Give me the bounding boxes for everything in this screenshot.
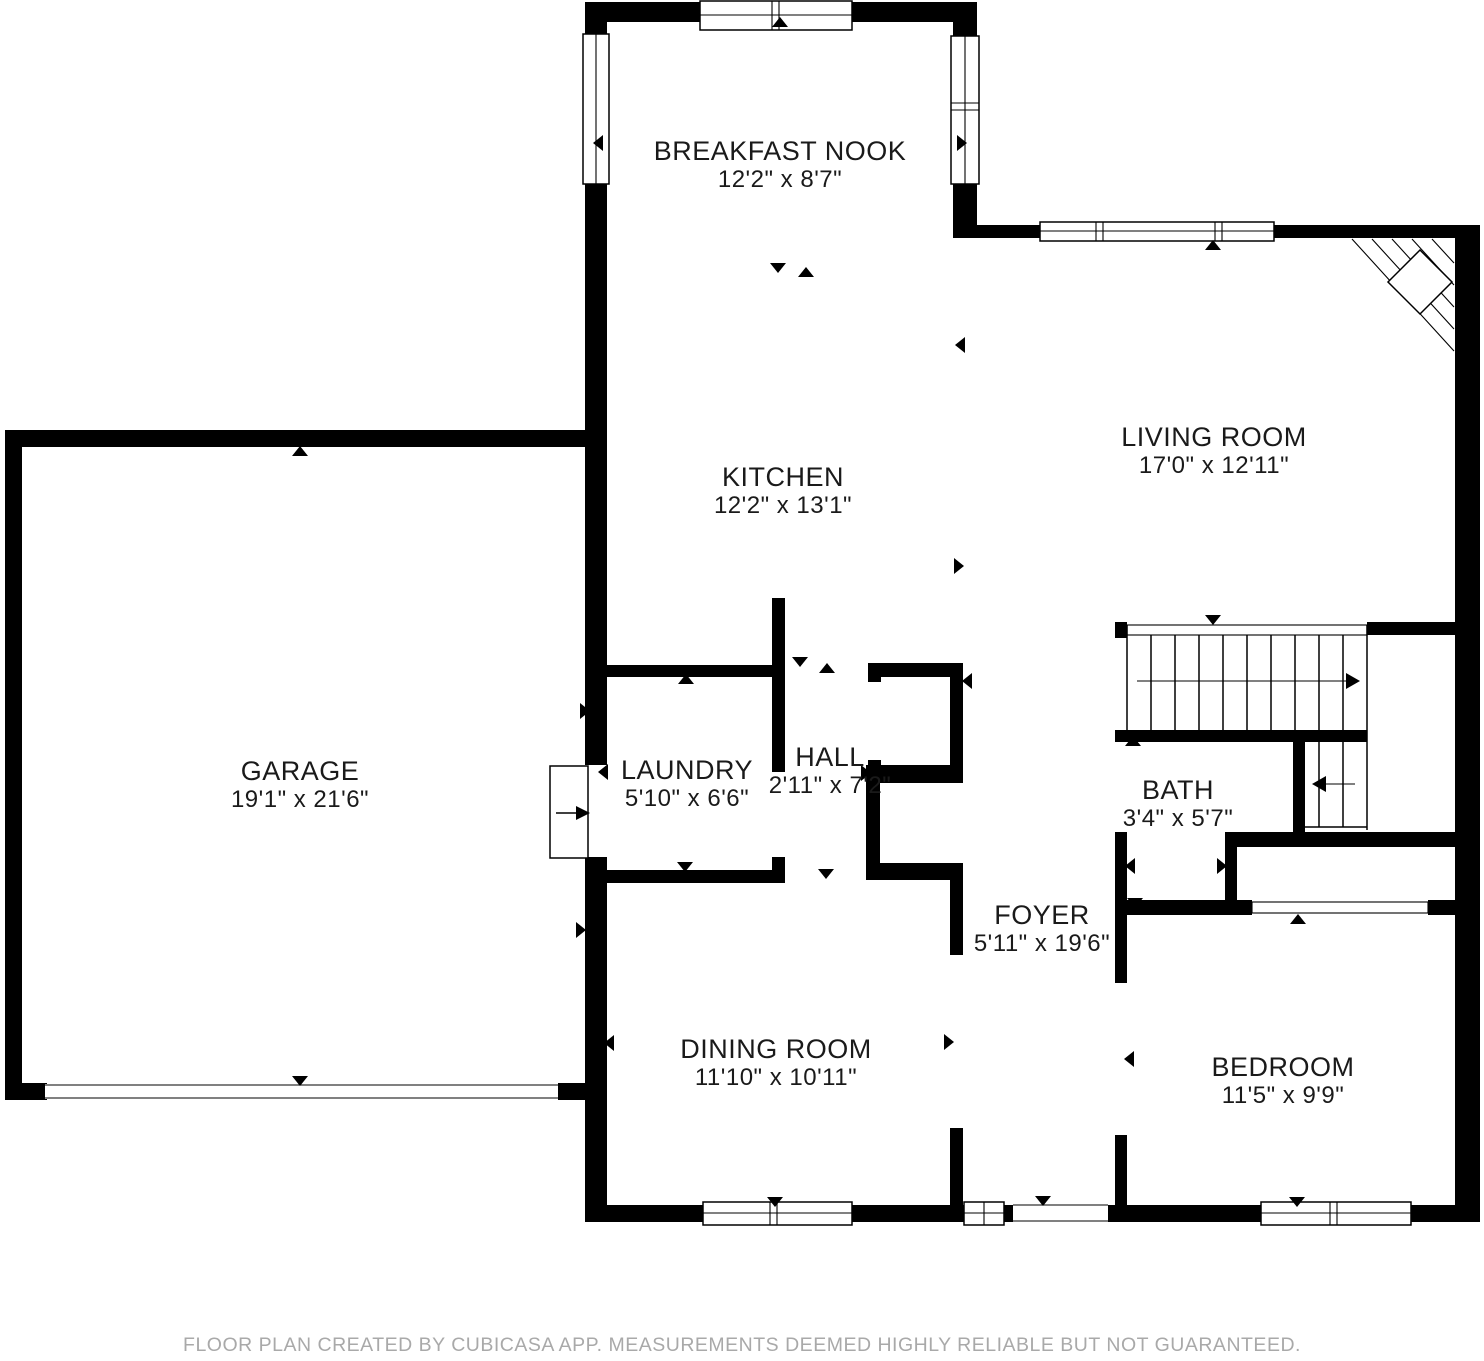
breakfast-nook-left-window — [583, 34, 609, 184]
walls — [5, 2, 1480, 1222]
breakfast-nook-right-window — [951, 36, 979, 184]
floor-plan-drawing — [0, 0, 1484, 1361]
garage-door — [45, 1084, 558, 1099]
stair-treads-upper — [1151, 635, 1343, 730]
closet-sliding-doors — [1252, 902, 1428, 913]
fireplace — [1352, 239, 1454, 351]
foyer-sidelight-window — [964, 1202, 1004, 1225]
footer-disclaimer: FLOOR PLAN CREATED BY CUBICASA APP. MEAS… — [0, 1334, 1484, 1357]
front-door-opening — [1013, 1203, 1108, 1224]
laundry-garage-door — [550, 766, 590, 858]
floor-plan: BREAKFAST NOOK 12'2" x 8'7" LIVING ROOM … — [0, 0, 1484, 1361]
staircase — [1127, 625, 1367, 830]
dining-room-window — [703, 1202, 852, 1225]
stairs-open-edge — [1127, 625, 1367, 635]
door-window-markers — [8, 17, 1468, 1207]
bedroom-window — [1261, 1202, 1411, 1225]
stairs-direction-arrow-up — [1137, 673, 1360, 689]
living-room-window — [1040, 222, 1274, 241]
windows — [583, 1, 1411, 1225]
